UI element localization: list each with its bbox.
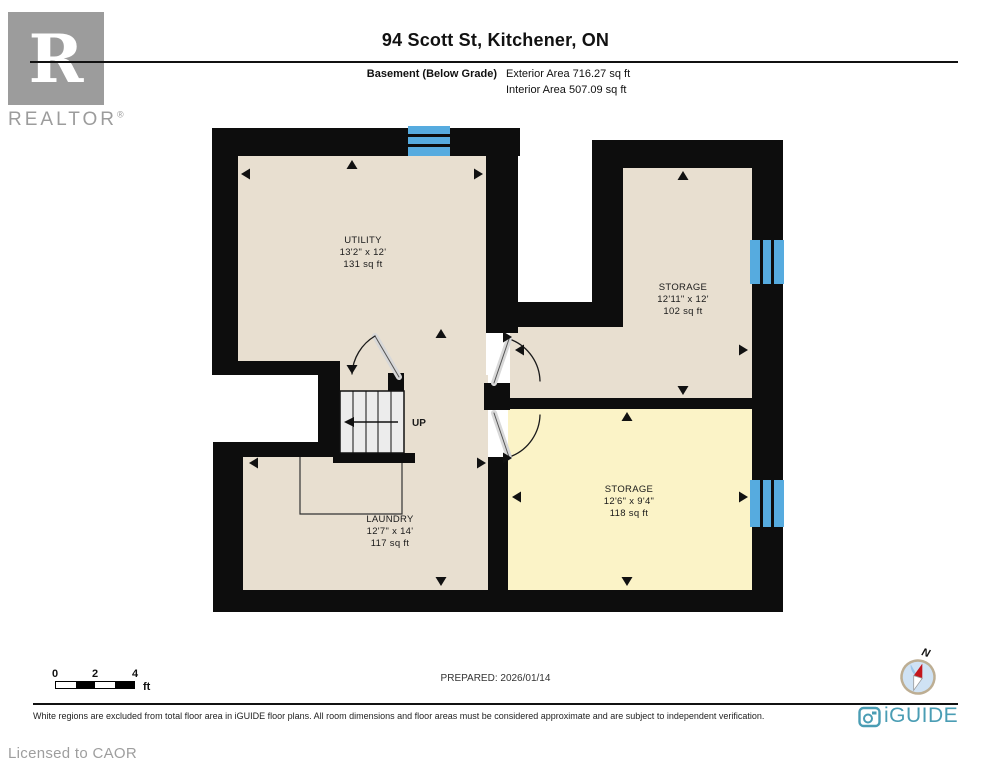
floorplan-drawing: UP: [0, 0, 991, 768]
utility-area: 131 sq ft: [343, 259, 382, 270]
compass-icon: N: [893, 645, 943, 700]
footer-divider: [33, 703, 958, 705]
licensed-text: Licensed to CAOR: [8, 745, 137, 762]
laundry-name: LAUNDRY: [366, 514, 414, 525]
storage-upper-dims: 12'11" x 12': [657, 294, 709, 305]
storage-lower-dims: 12'6" x 9'4": [604, 496, 654, 507]
stairs-up-label: UP: [412, 418, 426, 429]
window-right-upper: [750, 240, 784, 284]
storage-lower-area: 118 sq ft: [610, 508, 648, 519]
iguide-camera-icon: [858, 705, 881, 728]
utility-name: UTILITY: [344, 235, 382, 246]
iguide-logo: iGUIDE: [858, 704, 958, 728]
compass-n-label: N: [920, 646, 932, 660]
laundry-area: 117 sq ft: [371, 538, 409, 549]
window-top: [408, 126, 450, 156]
storage-upper-area: 102 sq ft: [663, 306, 702, 317]
laundry-dims: 12'7" x 14': [367, 526, 414, 537]
window-right-lower: [750, 480, 784, 527]
utility-dims: 13'2" x 12': [340, 247, 387, 258]
iguide-logo-text: iGUIDE: [884, 704, 958, 728]
compass: N: [893, 645, 943, 705]
storage-lower-name: STORAGE: [605, 484, 653, 495]
disclaimer-text: White regions are excluded from total fl…: [33, 711, 843, 721]
prepared-date: PREPARED: 2026/01/14: [0, 673, 991, 684]
room-storage-upper-ext: [510, 327, 623, 398]
floorplan-page: R REALTOR® 94 Scott St, Kitchener, ON Ba…: [0, 0, 991, 768]
room-laundry: [243, 457, 488, 597]
storage-upper-name: STORAGE: [659, 282, 707, 293]
